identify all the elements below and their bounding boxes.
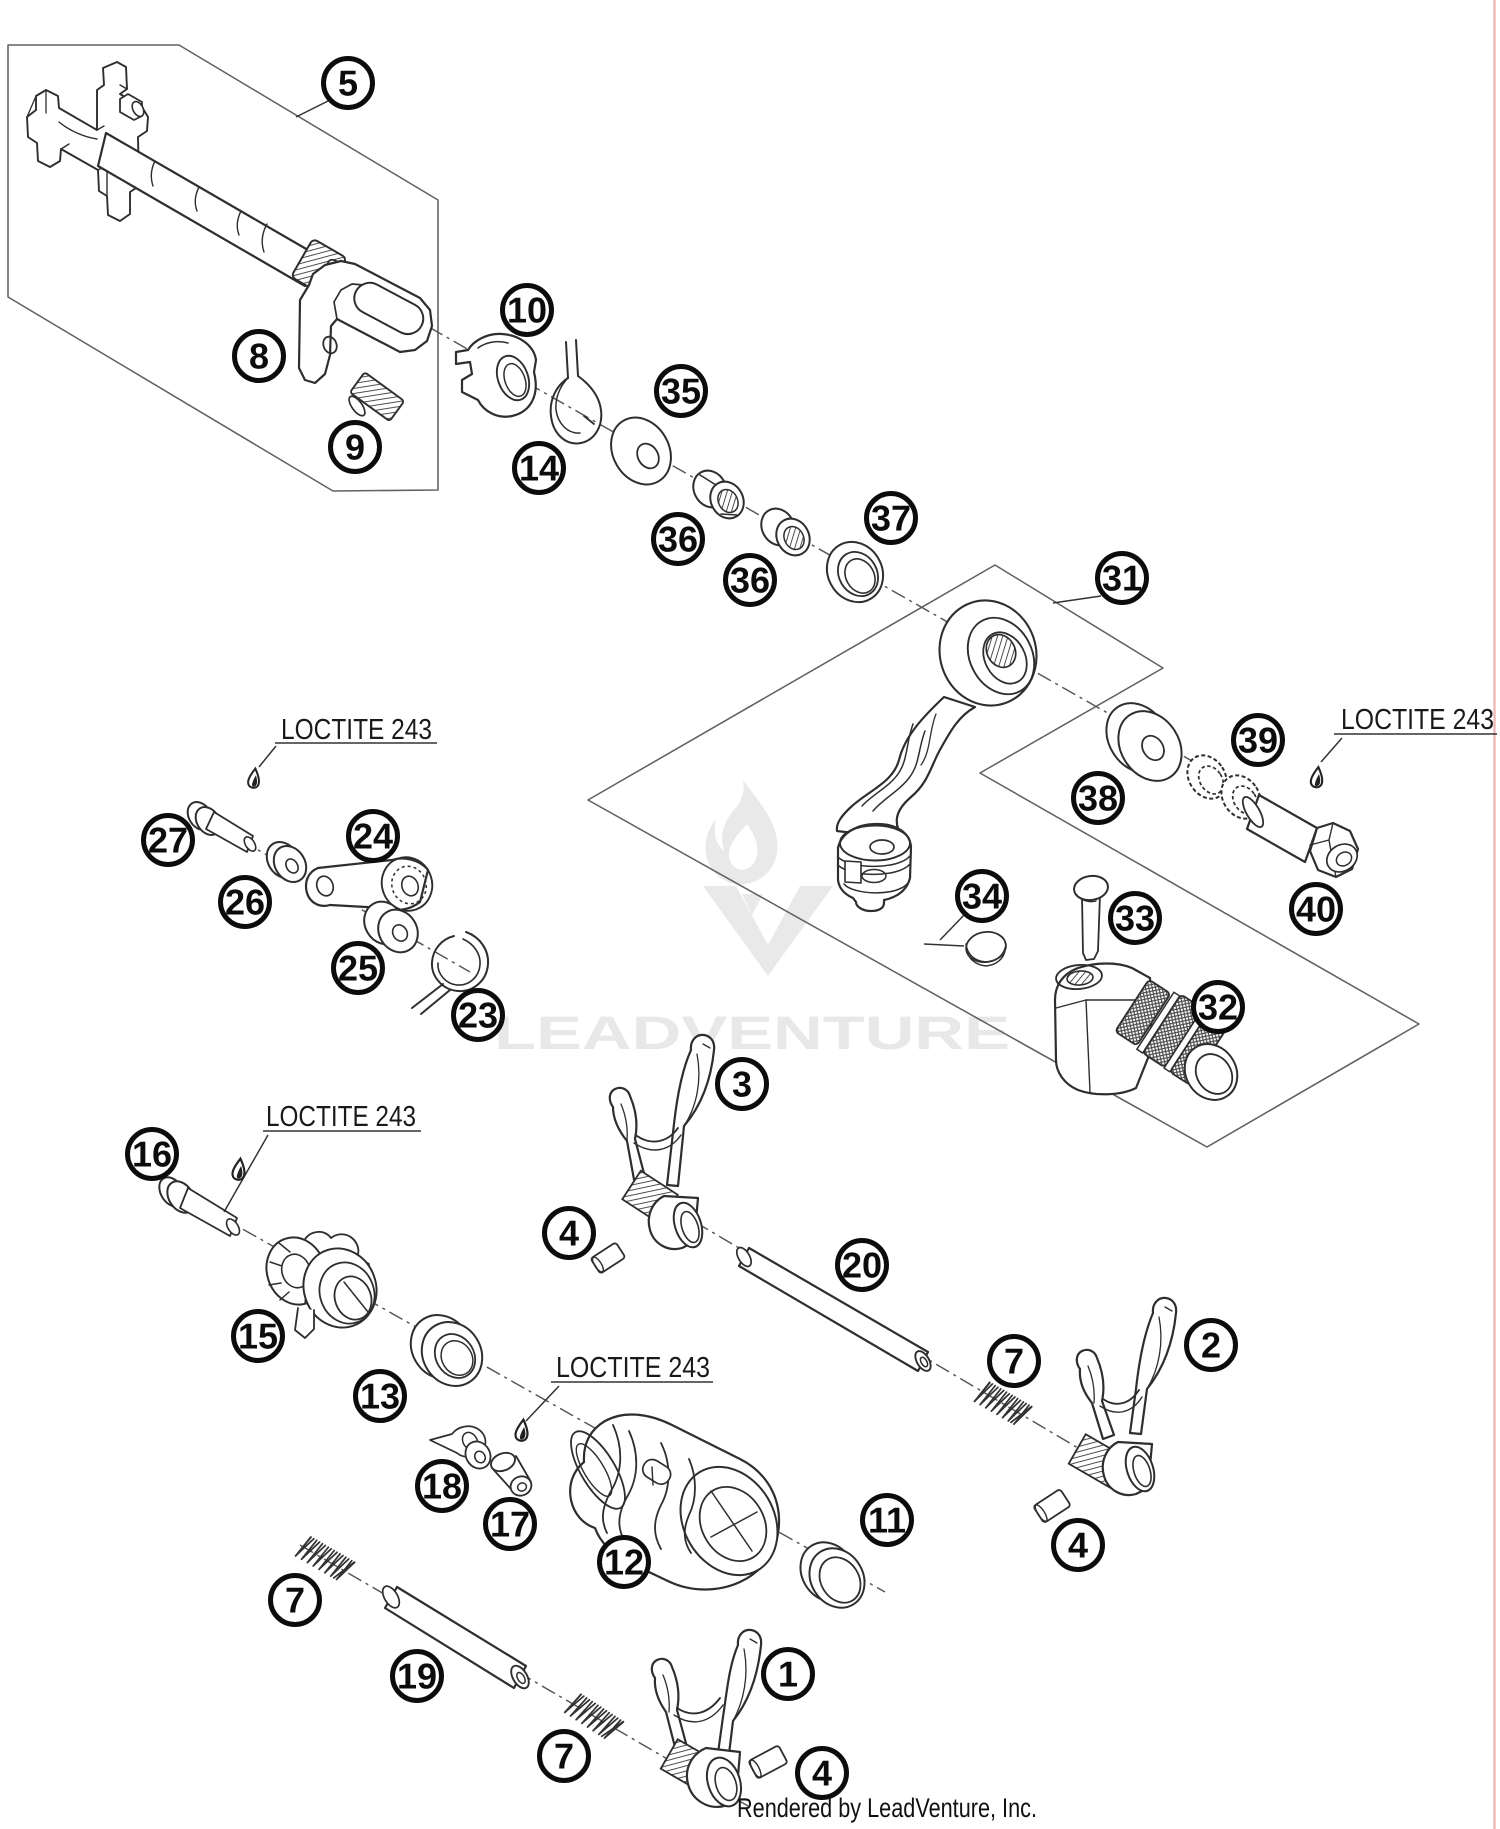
svg-text:5: 5	[338, 63, 358, 104]
svg-text:14: 14	[519, 448, 559, 489]
svg-text:8: 8	[249, 336, 269, 377]
svg-text:4: 4	[559, 1213, 579, 1254]
svg-text:40: 40	[1296, 889, 1336, 930]
svg-text:10: 10	[507, 290, 547, 331]
svg-text:3: 3	[732, 1064, 752, 1105]
svg-text:31: 31	[1102, 558, 1142, 599]
svg-text:23: 23	[458, 995, 498, 1036]
svg-text:38: 38	[1078, 778, 1118, 819]
svg-text:1: 1	[778, 1654, 798, 1695]
svg-text:39: 39	[1238, 720, 1278, 761]
svg-text:25: 25	[338, 948, 378, 989]
svg-text:26: 26	[225, 882, 265, 923]
svg-text:7: 7	[1004, 1341, 1024, 1382]
svg-text:7: 7	[285, 1580, 305, 1621]
svg-text:36: 36	[730, 560, 770, 601]
svg-text:Rendered by LeadVenture, Inc.: Rendered by LeadVenture, Inc.	[737, 1793, 1037, 1823]
svg-text:19: 19	[397, 1656, 437, 1697]
svg-text:24: 24	[353, 816, 393, 857]
svg-text:32: 32	[1198, 987, 1238, 1028]
svg-text:LOCTITE 243: LOCTITE 243	[556, 1352, 710, 1384]
svg-text:2: 2	[1201, 1325, 1221, 1366]
svg-text:36: 36	[658, 519, 698, 560]
svg-text:7: 7	[554, 1736, 574, 1777]
svg-text:33: 33	[1115, 898, 1155, 939]
svg-text:12: 12	[604, 1542, 644, 1583]
svg-text:27: 27	[148, 820, 188, 861]
svg-text:LOCTITE 243: LOCTITE 243	[1341, 704, 1494, 736]
svg-text:34: 34	[962, 876, 1002, 917]
svg-text:16: 16	[132, 1134, 172, 1175]
svg-text:9: 9	[345, 427, 365, 468]
svg-text:17: 17	[490, 1504, 530, 1545]
svg-text:LEADVENTURE: LEADVENTURE	[494, 1006, 1010, 1059]
svg-text:20: 20	[842, 1245, 882, 1286]
svg-text:18: 18	[422, 1466, 462, 1507]
svg-text:LOCTITE 243: LOCTITE 243	[281, 714, 432, 746]
svg-text:4: 4	[1068, 1525, 1088, 1566]
svg-text:11: 11	[868, 1500, 906, 1541]
svg-text:13: 13	[360, 1376, 400, 1417]
svg-text:37: 37	[871, 498, 911, 539]
svg-text:15: 15	[238, 1316, 278, 1357]
svg-text:LOCTITE 243: LOCTITE 243	[266, 1101, 416, 1133]
svg-text:35: 35	[661, 371, 701, 412]
svg-text:4: 4	[812, 1753, 832, 1794]
